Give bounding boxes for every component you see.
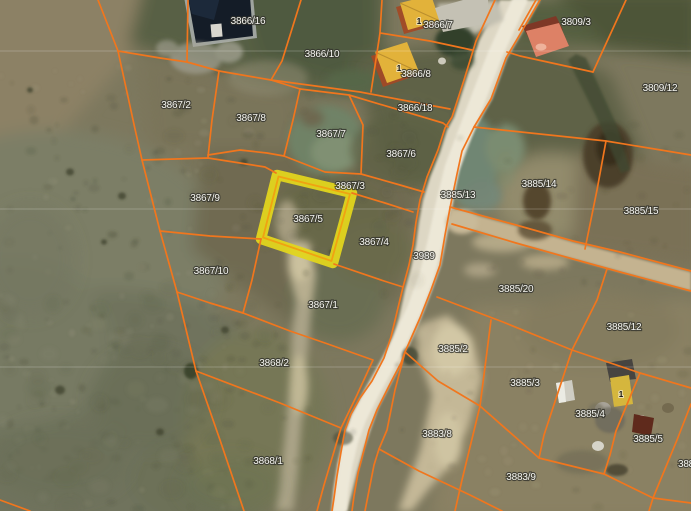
svg-text:3867/7: 3867/7 bbox=[316, 129, 346, 140]
svg-text:3867/5: 3867/5 bbox=[293, 214, 323, 225]
svg-text:1: 1 bbox=[417, 17, 422, 26]
svg-text:3866/16: 3866/16 bbox=[231, 16, 266, 27]
svg-text:3866/18: 3866/18 bbox=[398, 103, 433, 114]
svg-text:3883/9: 3883/9 bbox=[506, 472, 536, 483]
svg-text:3885/2: 3885/2 bbox=[438, 344, 468, 355]
svg-text:3885/4: 3885/4 bbox=[575, 409, 605, 420]
svg-text:3885/5: 3885/5 bbox=[633, 434, 663, 445]
svg-text:3885/20: 3885/20 bbox=[499, 284, 534, 295]
svg-text:3868/1: 3868/1 bbox=[253, 456, 283, 467]
svg-text:3866/10: 3866/10 bbox=[305, 49, 340, 60]
svg-text:3885/15: 3885/15 bbox=[624, 206, 659, 217]
svg-text:3867/2: 3867/2 bbox=[161, 100, 191, 111]
svg-text:1: 1 bbox=[397, 64, 402, 73]
svg-text:3867/8: 3867/8 bbox=[236, 113, 266, 124]
svg-text:3866/8: 3866/8 bbox=[401, 69, 431, 80]
svg-text:3867/3: 3867/3 bbox=[335, 181, 365, 192]
svg-text:3867/9: 3867/9 bbox=[190, 193, 220, 204]
svg-text:3885/12: 3885/12 bbox=[607, 322, 642, 333]
svg-text:388: 388 bbox=[678, 459, 691, 470]
svg-text:3866/7: 3866/7 bbox=[423, 20, 453, 31]
svg-text:1: 1 bbox=[619, 390, 624, 399]
svg-text:3885/3: 3885/3 bbox=[510, 378, 540, 389]
svg-text:3809/12: 3809/12 bbox=[643, 83, 678, 94]
svg-text:3885/14: 3885/14 bbox=[522, 179, 557, 190]
svg-text:3883/8: 3883/8 bbox=[422, 429, 452, 440]
svg-text:3989: 3989 bbox=[413, 251, 435, 262]
svg-text:3867/6: 3867/6 bbox=[386, 149, 416, 160]
svg-text:3809/3: 3809/3 bbox=[561, 17, 591, 28]
svg-text:3868/2: 3868/2 bbox=[259, 358, 289, 369]
svg-text:3867/1: 3867/1 bbox=[308, 300, 338, 311]
svg-text:3867/4: 3867/4 bbox=[359, 237, 389, 248]
svg-text:3867/10: 3867/10 bbox=[194, 266, 229, 277]
svg-text:3885/13: 3885/13 bbox=[441, 190, 476, 201]
